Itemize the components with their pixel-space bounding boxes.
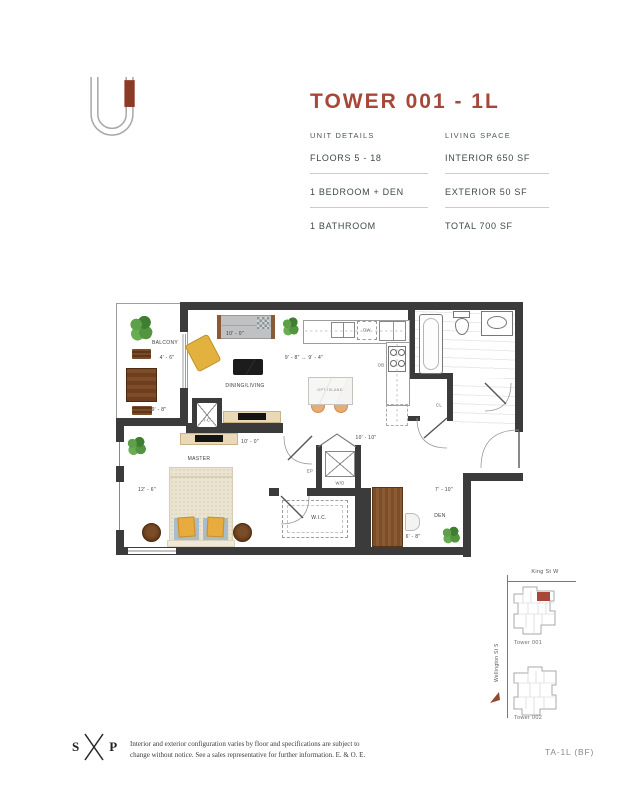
opt-island-label: OPT ISLAND xyxy=(317,388,343,392)
doors-overlay xyxy=(95,290,525,580)
balcony-label: BALCONY xyxy=(152,340,178,346)
sxp-logo: S P xyxy=(72,732,117,762)
den-width-dim: 7' - 10" xyxy=(435,487,453,493)
hall-dim: 10' - 10" xyxy=(356,435,377,441)
living-space-heading: LIVING SPACE xyxy=(445,131,549,140)
unit-details-column: UNIT DETAILS FLOORS 5 - 18 1 BEDROOM + D… xyxy=(310,131,428,241)
spec-table: UNIT DETAILS FLOORS 5 - 18 1 BEDROOM + D… xyxy=(310,131,549,241)
north-arrow-icon xyxy=(488,690,502,706)
street-wellington-label: Wellington St S xyxy=(494,612,500,682)
highlighted-unit xyxy=(537,592,550,601)
spec-total: TOTAL 700 SF xyxy=(445,208,549,241)
tower-002-label: Tower 002 xyxy=(514,715,542,721)
street-king-line xyxy=(508,581,576,582)
sxp-x-icon xyxy=(82,732,106,762)
tower-001-footprint xyxy=(510,584,558,637)
kitchen-dim: 9' - 8" ↔ 9' - 4" xyxy=(285,355,323,361)
dining-living-label: DINING/LIVING xyxy=(225,383,264,389)
spec-interior: INTERIOR 650 SF xyxy=(445,140,549,174)
ic-shaft-label: I-C xyxy=(204,418,210,423)
u-logo xyxy=(80,70,144,146)
disclaimer-line-2: change without notice. See a sales repre… xyxy=(130,750,398,761)
tower-002-footprint xyxy=(510,665,560,717)
den-depth-dim: 6' - 8" xyxy=(406,534,421,540)
street-wellington-line xyxy=(507,575,508,718)
spec-bedrooms: 1 BEDROOM + DEN xyxy=(310,174,428,208)
master-length-dim: 12' - 6" xyxy=(138,487,156,493)
wic-door-leaf xyxy=(281,496,303,518)
washer-dryer-label: W/D xyxy=(335,481,344,486)
balcony-width-dim: 4' - 6" xyxy=(160,355,175,361)
balcony-length-dim: 9' - 8" xyxy=(152,407,167,413)
tower-001-label: Tower 001 xyxy=(514,640,542,646)
spec-bathrooms: 1 BATHROOM xyxy=(310,208,428,241)
closet-door-leaf xyxy=(424,418,447,438)
laundry-bifold-doors xyxy=(318,434,356,447)
master-door-leaf xyxy=(288,436,312,460)
u-logo-red-block xyxy=(124,80,134,107)
living-width-dim: 10' - 0" xyxy=(226,331,244,337)
site-map: King St W Wellington St S Tower 001 Towe… xyxy=(480,562,630,727)
electrical-panel-label: EP xyxy=(307,469,313,474)
wic-label: W.I.C. xyxy=(311,515,326,521)
spec-floors: FLOORS 5 - 18 xyxy=(310,140,428,174)
living-space-column: LIVING SPACE INTERIOR 650 SF EXTERIOR 50… xyxy=(445,131,549,241)
dishwasher-label: DW xyxy=(363,328,371,333)
sxp-logo-p: P xyxy=(109,739,117,755)
closet-label: CL xyxy=(436,403,442,408)
master-label: MASTER xyxy=(188,456,211,462)
sxp-logo-s: S xyxy=(72,739,79,755)
floor-plan: BALCONY 4' - 6" 9' - 8" 10' - 0" DINING/… xyxy=(95,290,525,580)
entry-door-arc xyxy=(481,430,519,468)
page-title: TOWER 001 - 1L xyxy=(310,90,500,114)
bath-door-leaf xyxy=(485,383,506,404)
unit-details-heading: UNIT DETAILS xyxy=(310,131,428,140)
oven-label: OB xyxy=(378,363,385,368)
disclaimer-line-1: Interior and exterior configuration vari… xyxy=(130,739,398,750)
spec-exterior: EXTERIOR 50 SF xyxy=(445,174,549,208)
den-label: DEN xyxy=(434,513,445,519)
disclaimer: Interior and exterior configuration vari… xyxy=(130,739,398,760)
floorplan-sheet: TOWER 001 - 1L UNIT DETAILS FLOORS 5 - 1… xyxy=(0,0,640,790)
plan-code: TA-1L (BF) xyxy=(545,747,594,757)
master-width-dim: 10' - 0" xyxy=(241,439,259,445)
